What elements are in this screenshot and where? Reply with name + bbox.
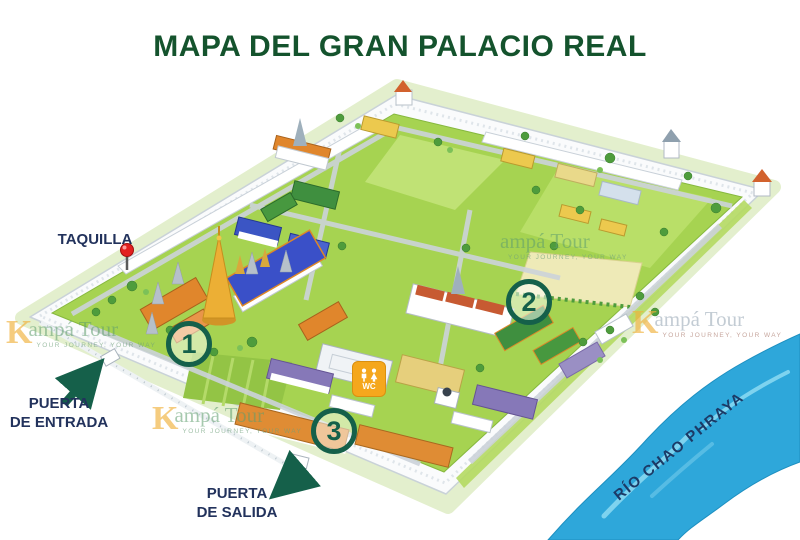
entrance-label-line1: PUERTA bbox=[29, 395, 90, 412]
palace-map-illustration bbox=[0, 0, 800, 540]
wc-label: WC bbox=[362, 383, 375, 391]
ticket-office-label: TAQUILLA bbox=[40, 230, 150, 249]
wc-badge: WC bbox=[352, 361, 386, 397]
exit-label-line1: PUERTA bbox=[207, 485, 268, 502]
marker-3: 3 bbox=[311, 408, 357, 454]
page-title: MAPA DEL GRAN PALACIO REAL bbox=[0, 30, 800, 64]
exit-label-line2: DE SALIDA bbox=[197, 504, 278, 521]
exit-label: PUERTA DE SALIDA bbox=[184, 484, 290, 522]
marker-2: 2 bbox=[506, 279, 552, 325]
east-gate bbox=[752, 169, 772, 196]
marker-1: 1 bbox=[166, 321, 212, 367]
entrance-label: PUERTA DE ENTRADA bbox=[8, 394, 110, 432]
grand-palace-map-page: MAPA DEL GRAN PALACIO REAL bbox=[0, 0, 800, 540]
restroom-figures-icon bbox=[357, 368, 381, 382]
entrance-label-line2: DE ENTRADA bbox=[10, 414, 108, 431]
